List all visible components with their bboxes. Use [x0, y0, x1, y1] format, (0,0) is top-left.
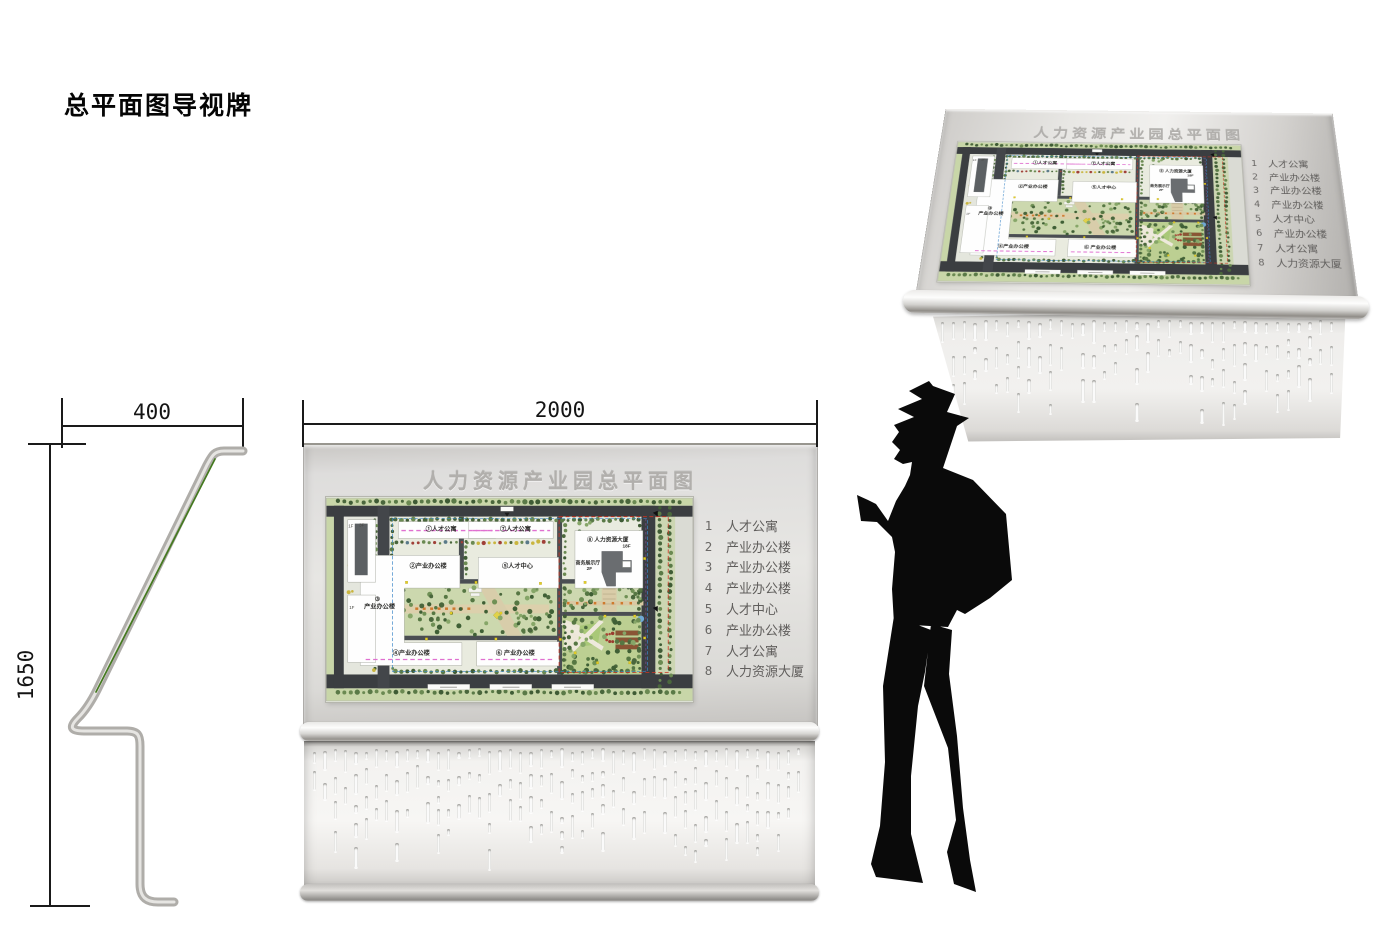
legend: 1人才公寓 2产业办公楼 3产业办公楼 4产业办公楼 5人才中心 6产业办公楼 …: [703, 515, 804, 681]
legend-item: 1人才公寓: [1249, 156, 1329, 170]
page-title: 总平面图导视牌: [64, 86, 253, 122]
legend-item: 4产业办公楼: [1252, 197, 1335, 212]
legend: 1人才公寓 2产业办公楼 3产业办公楼 4产业办公楼 5人才中心 6产业办公楼 …: [1249, 156, 1342, 271]
sign-front-perforated-skirt: [304, 741, 815, 886]
legend-item: 6产业办公楼: [703, 619, 804, 640]
legend-item: 4产业办公楼: [703, 577, 804, 598]
legend-item: 7人才公寓: [703, 640, 804, 661]
legend-item: 3产业办公楼: [703, 557, 804, 578]
legend-item: 5人才中心: [703, 598, 804, 619]
legend-item: 2产业办公楼: [1250, 170, 1331, 184]
sign-3d-perforated-skirt: [925, 309, 1349, 447]
legend-item: 7人才公寓: [1255, 240, 1340, 256]
dimension-2000: [303, 400, 817, 447]
dimension-1650: [28, 443, 90, 906]
sign-side-profile: [72, 451, 243, 902]
dimension-2000-label: 2000: [535, 398, 586, 422]
sign-front-rail: [300, 722, 819, 741]
panel-title: 人力资源产业园总平面图: [304, 465, 817, 494]
design-sheet: ①人才公寓 ⑦人才公寓 ②产业办公楼 ⑤人才中心 ③ 产业办公楼 ④产业办公楼 …: [0, 0, 1400, 950]
legend-item: 6产业办公楼: [1254, 225, 1338, 241]
legend-item: 5人才中心: [1253, 211, 1337, 226]
site-map: [937, 142, 1250, 286]
sign-front-view: 人力资源产业园总平面图 1人才公寓 2产业办公楼 3产业办公楼 4产业办公楼 5…: [303, 443, 818, 726]
site-map: [326, 497, 693, 702]
sign-front-face: 人力资源产业园总平面图 1人才公寓 2产业办公楼 3产业办公楼 4产业办公楼 5…: [303, 443, 818, 726]
person-silhouette: [857, 381, 1012, 892]
dimension-400-label: 400: [133, 400, 171, 424]
sign-3d-face: 人力资源产业园总平面图 1人才公寓 2产业办公楼 3产业办公楼 4产业办公楼 5…: [915, 109, 1360, 306]
legend-item: 8人力资源大厦: [1256, 255, 1342, 271]
profile-screen-edge: [96, 459, 215, 692]
sign-front-base-rail: [300, 884, 819, 901]
dimension-400: [62, 398, 243, 452]
legend-item: 3产业办公楼: [1251, 183, 1333, 198]
sign-3d-view: 人力资源产业园总平面图 1人才公寓 2产业办公楼 3产业办公楼 4产业办公楼 5…: [915, 109, 1357, 303]
legend-item: 1人才公寓: [703, 515, 804, 536]
legend-item: 2产业办公楼: [703, 536, 804, 557]
dimension-1650-label: 1650: [14, 650, 38, 701]
legend-item: 8人力资源大厦: [703, 661, 804, 682]
panel-title: 人力资源产业园总平面图: [941, 122, 1336, 144]
